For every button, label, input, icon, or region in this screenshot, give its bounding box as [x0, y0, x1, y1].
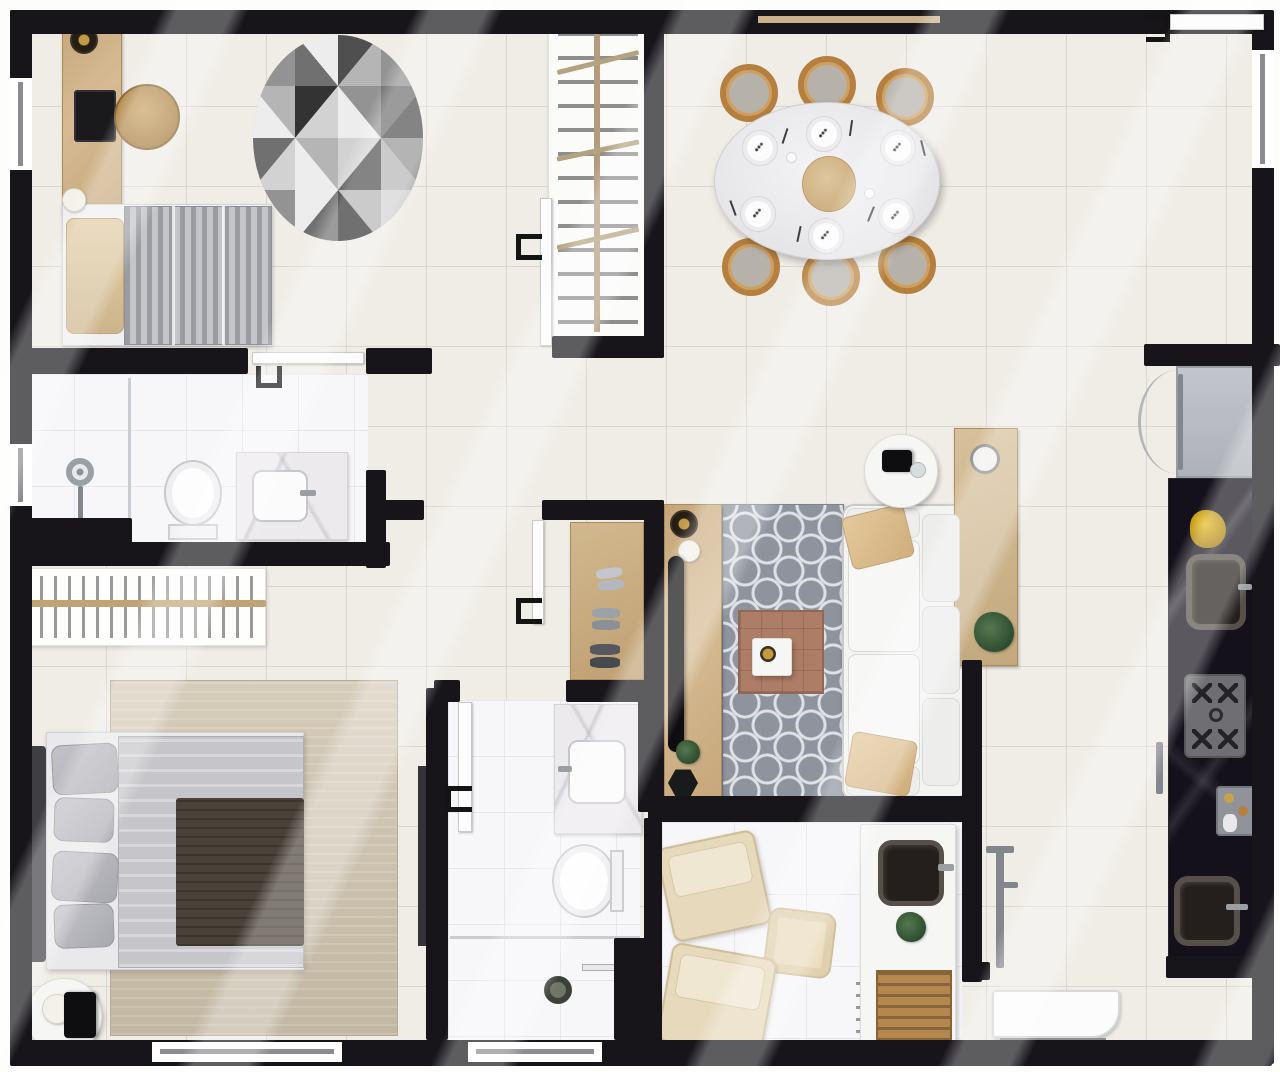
brown-throw — [176, 798, 304, 946]
place-setting — [880, 130, 916, 166]
knob — [1238, 806, 1248, 816]
wall-sofa-right — [962, 660, 982, 982]
center-platter — [802, 156, 856, 212]
door-entry — [1170, 14, 1264, 30]
sink-faucet — [1226, 904, 1248, 910]
duvet-fold — [172, 206, 175, 345]
plant — [676, 740, 700, 764]
vanity-basin-2 — [568, 740, 626, 804]
glass-cup — [910, 462, 926, 478]
window-sill-dining — [758, 16, 940, 23]
door-bedroom1 — [540, 198, 552, 346]
burner — [1218, 729, 1238, 749]
vanity-faucet — [300, 490, 316, 496]
window — [10, 444, 32, 506]
balcony-faucet — [938, 864, 954, 871]
door-bathroom1 — [252, 352, 364, 364]
wall-living-balcony — [648, 796, 982, 822]
burner — [1192, 729, 1212, 749]
wall-bath1-bottom — [10, 542, 390, 566]
wall-bath2-right — [638, 680, 656, 812]
wall-service-stub — [974, 962, 990, 980]
wall-outer-top — [10, 10, 1272, 34]
wall-wardrobe-bottom — [552, 336, 664, 358]
sofa-back-cushion — [922, 514, 960, 602]
pillow — [53, 797, 114, 843]
refrigerator — [1176, 366, 1256, 478]
shower-head — [66, 458, 94, 486]
plant — [896, 912, 926, 942]
toilet-tank-2 — [610, 850, 624, 912]
door-bathroom2 — [458, 702, 472, 832]
vanity-basin — [252, 470, 308, 522]
metal-dish — [970, 444, 1000, 474]
shoes-pair — [592, 620, 620, 630]
mini-dish — [786, 152, 797, 163]
shoes-pair — [592, 608, 620, 618]
door-hinge — [446, 786, 472, 812]
grab-bar — [582, 964, 618, 971]
balcony-sink — [878, 840, 944, 906]
place-setting — [806, 116, 842, 152]
shoes-pair — [590, 644, 620, 655]
door-hinge — [1146, 14, 1170, 42]
window — [10, 78, 32, 170]
burner — [1192, 683, 1212, 703]
door-hinge — [516, 234, 542, 260]
pillow — [51, 742, 120, 795]
pillow — [51, 850, 120, 903]
mini-dish — [864, 188, 875, 199]
plant — [974, 612, 1014, 652]
shoes-pair — [590, 657, 620, 668]
sofa-back-cushion — [922, 698, 960, 786]
sink-faucet — [1238, 584, 1252, 590]
place-setting — [878, 198, 914, 234]
fridge-handle — [1178, 374, 1183, 470]
shower-glass-partition — [128, 378, 131, 520]
camera-decor — [882, 450, 912, 472]
laptop — [74, 90, 116, 142]
toilet — [164, 460, 222, 526]
place-setting — [742, 130, 778, 166]
bed1-duvet — [124, 206, 272, 345]
burner — [1218, 683, 1238, 703]
vanity-faucet-2 — [558, 766, 572, 772]
throw-pillow — [844, 731, 919, 798]
door-hinge — [256, 366, 282, 388]
wall-master-right — [426, 688, 448, 1040]
place-setting — [740, 196, 776, 232]
toilet-2 — [552, 844, 616, 918]
shower-partition-2 — [450, 936, 640, 939]
round-mosaic-rug — [252, 34, 424, 242]
tv — [668, 556, 684, 752]
bedside-decor — [64, 992, 96, 1038]
duvet-fold — [222, 206, 225, 345]
decor-bowl-black — [670, 510, 698, 538]
door-hinge — [516, 598, 542, 624]
knob — [1224, 793, 1234, 803]
floor-plan — [0, 0, 1280, 1072]
gas-stove — [1184, 674, 1246, 758]
window — [1252, 50, 1274, 168]
wall-bath2-block — [614, 938, 648, 1040]
wood-crate — [876, 970, 952, 1048]
toilet-tank — [168, 524, 218, 540]
wall-rack-slats — [26, 576, 262, 638]
wall-kitchen-top — [1144, 344, 1280, 366]
appliance-mark — [1223, 814, 1237, 832]
wall-bath1-top-left — [10, 348, 248, 374]
wall-wardrobe-right — [644, 10, 664, 358]
rattan-stool — [114, 84, 180, 150]
fruit-bowl — [1190, 510, 1226, 548]
lounge-chair — [655, 829, 773, 944]
wall-bath1-right-stub — [384, 500, 424, 520]
bed1-pillow — [66, 218, 124, 334]
pillow — [53, 903, 114, 949]
kitchen-sink-upper — [1186, 554, 1246, 630]
sofa-back-cushion — [922, 606, 960, 694]
tall-faucet — [996, 852, 1004, 968]
wall-outer-right — [1252, 10, 1274, 1064]
desk-lamp — [62, 188, 86, 212]
place-setting — [808, 218, 844, 254]
faucet-spout — [1002, 882, 1018, 888]
shower-drain — [544, 976, 572, 1004]
center-burner — [1209, 708, 1223, 722]
window — [152, 1042, 342, 1062]
wall-rack-rail — [22, 600, 266, 607]
coffee-machine — [1216, 786, 1256, 836]
wall-bath1-top-right — [366, 348, 432, 374]
tray-bowl — [760, 646, 776, 662]
counter-handle — [1156, 742, 1163, 794]
laundry-tub — [992, 990, 1120, 1038]
window — [468, 1042, 602, 1062]
faucet-crossbar — [986, 846, 1014, 853]
wall-kitchen-bottom — [1166, 956, 1272, 978]
kitchen-sink-lower — [1174, 876, 1240, 946]
wardrobe-pole — [594, 26, 600, 332]
wall-shower-stub — [18, 518, 132, 544]
